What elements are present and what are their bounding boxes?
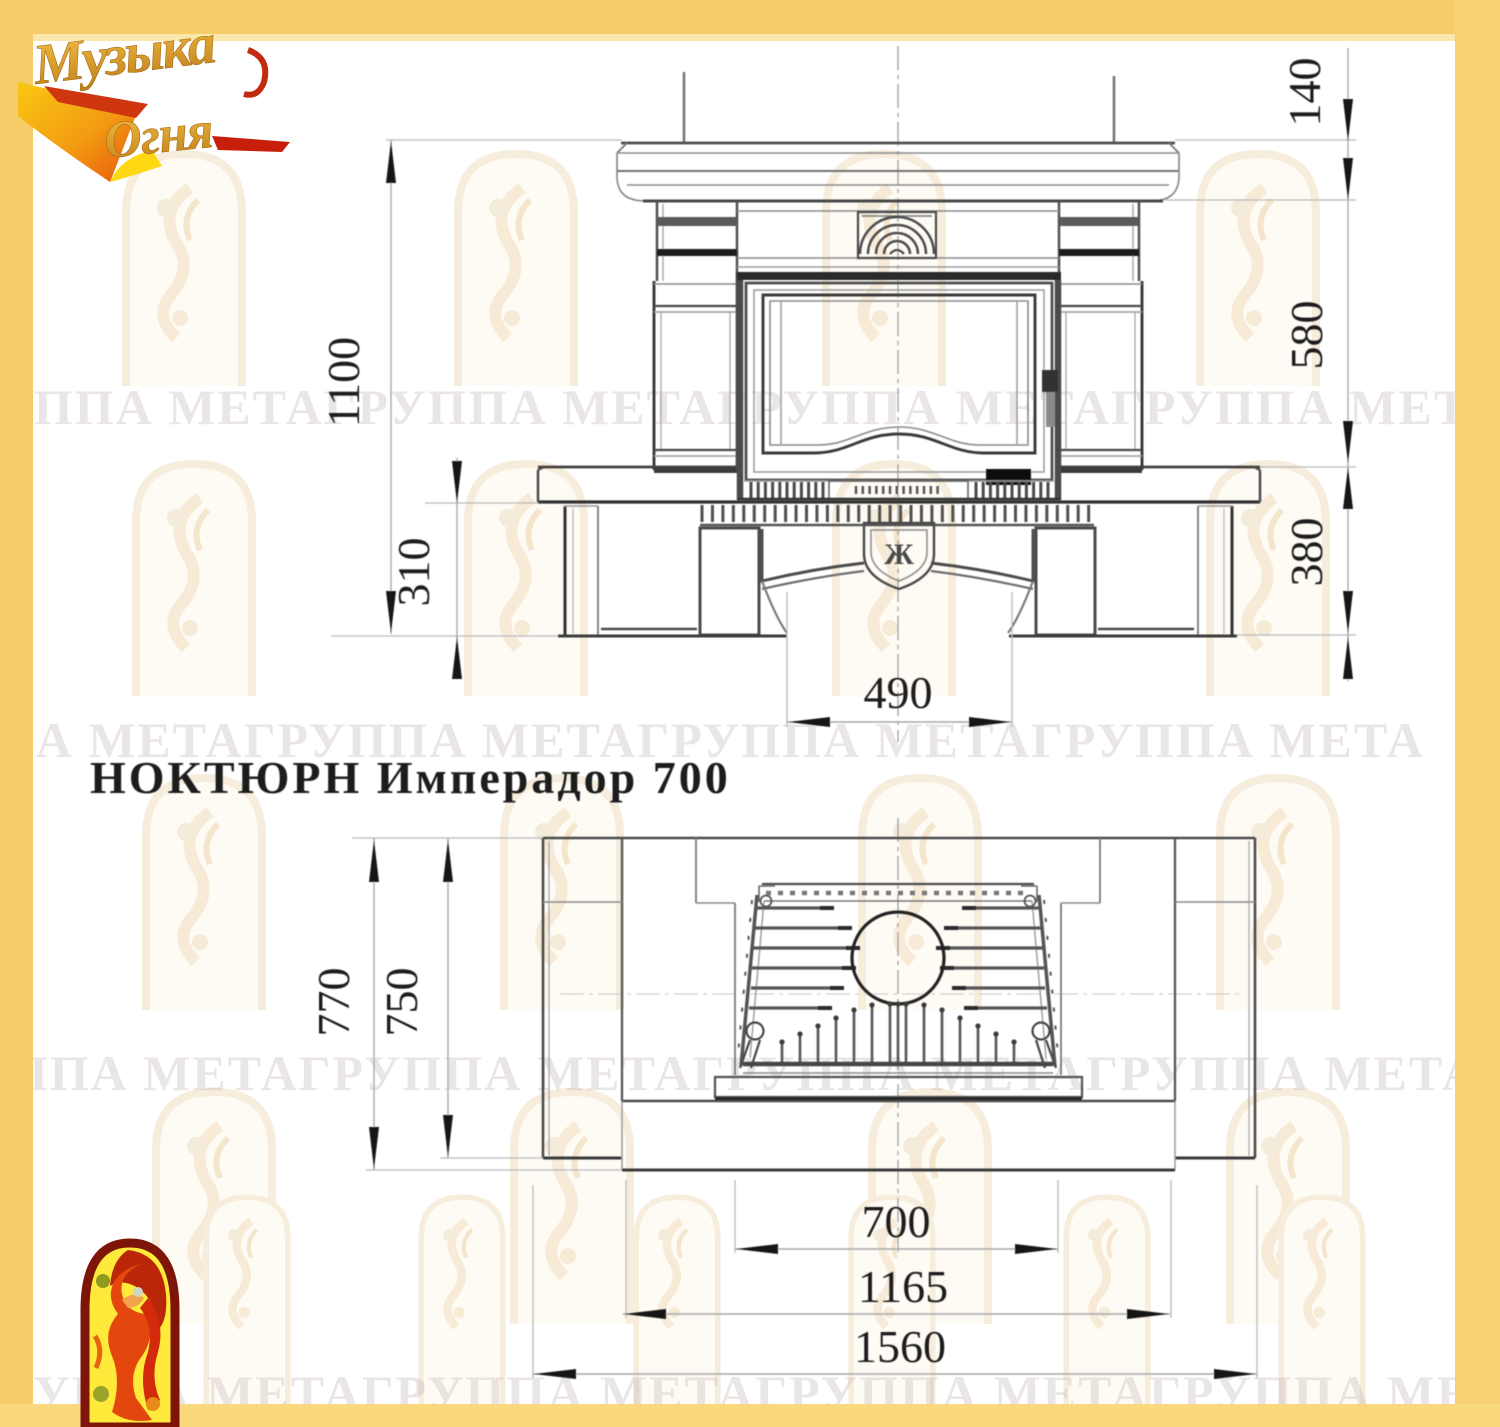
svg-text:Огня: Огня	[101, 102, 215, 170]
svg-text:380: 380	[1281, 518, 1332, 587]
svg-text:700: 700	[862, 1196, 931, 1247]
svg-text:1100: 1100	[318, 337, 369, 427]
svg-text:НОКТЮРН Имперадор 700: НОКТЮРН Имперадор 700	[90, 752, 731, 803]
svg-text:1165: 1165	[858, 1261, 948, 1312]
svg-text:750: 750	[376, 968, 427, 1037]
svg-text:770: 770	[308, 968, 359, 1037]
svg-text:ГРУППА МЕТАГРУППА МЕТАГРУППА М: ГРУППА МЕТАГРУППА МЕТАГРУППА МЕТАГРУППА …	[0, 379, 1500, 435]
svg-text:1560: 1560	[854, 1321, 946, 1372]
svg-text:310: 310	[388, 538, 439, 607]
svg-text:140: 140	[1279, 58, 1330, 127]
svg-text:490: 490	[864, 667, 933, 718]
svg-text:ГРУППА МЕТАГРУППА МЕТАГРУППА М: ГРУППА МЕТАГРУППА МЕТАГРУППА МЕТАГРУППА …	[0, 1045, 1480, 1101]
svg-text:Ж: Ж	[884, 538, 914, 571]
svg-text:580: 580	[1281, 301, 1332, 370]
